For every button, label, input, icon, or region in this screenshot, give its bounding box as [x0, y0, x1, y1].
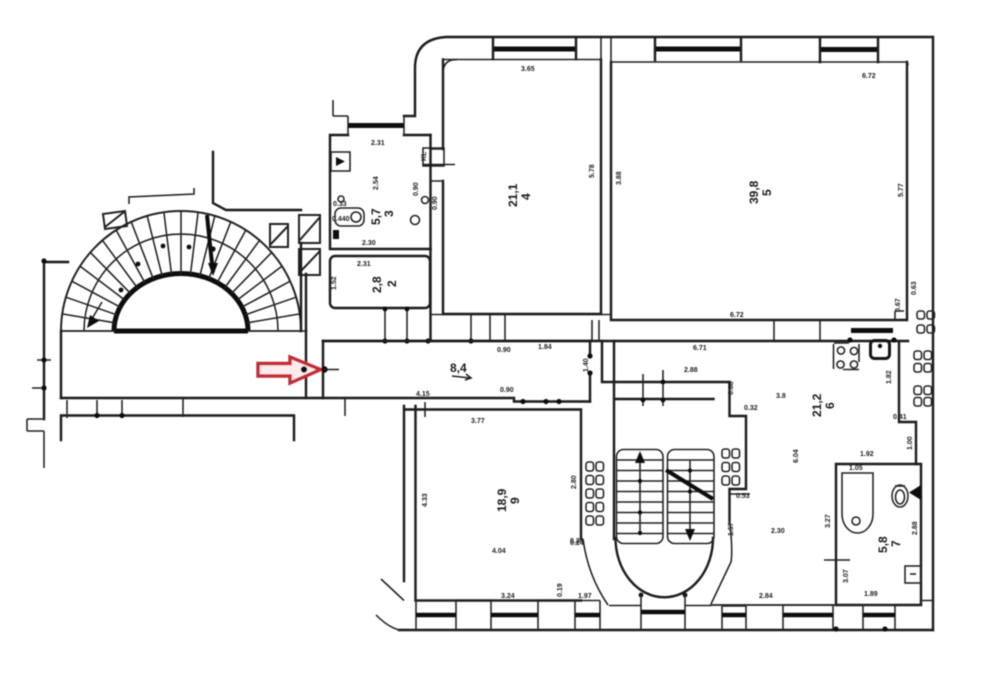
svg-text:0.88: 0.88 — [728, 381, 735, 395]
svg-text:21,2: 21,2 — [810, 393, 824, 417]
svg-text:1.92: 1.92 — [860, 451, 874, 458]
svg-text:1.52: 1.52 — [331, 276, 338, 290]
svg-text:1.05: 1.05 — [849, 465, 863, 472]
svg-text:1.40: 1.40 — [583, 358, 590, 372]
svg-text:0.67: 0.67 — [895, 298, 902, 312]
svg-text:0.19: 0.19 — [557, 583, 564, 597]
svg-text:5: 5 — [760, 189, 774, 196]
svg-text:8,4: 8,4 — [450, 361, 467, 375]
svg-text:0.32: 0.32 — [744, 405, 758, 412]
svg-text:2.31: 2.31 — [371, 140, 385, 147]
svg-text:0.90: 0.90 — [497, 347, 511, 354]
svg-text:1.89: 1.89 — [864, 591, 878, 598]
svg-text:6: 6 — [823, 402, 837, 409]
svg-text:3.65: 3.65 — [521, 66, 535, 73]
svg-text:39,8: 39,8 — [747, 180, 761, 204]
svg-text:4.15: 4.15 — [416, 391, 430, 398]
svg-text:3.24: 3.24 — [501, 593, 515, 600]
svg-text:4.04: 4.04 — [492, 548, 506, 555]
svg-text:5.77: 5.77 — [898, 183, 905, 197]
svg-text:9: 9 — [508, 497, 522, 504]
svg-text:0.90: 0.90 — [413, 182, 420, 196]
svg-text:KL: KL — [421, 151, 428, 161]
svg-text:1.84: 1.84 — [538, 344, 552, 351]
svg-text:3: 3 — [382, 210, 396, 217]
svg-text:2,8: 2,8 — [370, 276, 384, 293]
svg-text:3.27: 3.27 — [825, 514, 832, 528]
svg-text:2: 2 — [385, 280, 399, 287]
svg-text:1.82: 1.82 — [886, 370, 893, 384]
svg-text:3.77: 3.77 — [471, 418, 485, 425]
svg-text:6.71: 6.71 — [693, 345, 707, 352]
svg-text:0.440: 0.440 — [332, 216, 350, 223]
svg-text:4.33: 4.33 — [422, 493, 429, 507]
svg-text:2.31: 2.31 — [357, 261, 371, 268]
svg-text:0.90: 0.90 — [500, 387, 514, 394]
svg-text:3.07: 3.07 — [843, 569, 850, 583]
svg-text:5.78: 5.78 — [589, 164, 596, 178]
svg-text:2.30: 2.30 — [771, 528, 785, 535]
svg-text:5,7: 5,7 — [369, 208, 383, 225]
svg-text:2.84: 2.84 — [759, 593, 773, 600]
svg-text:2.54: 2.54 — [373, 176, 380, 190]
svg-text:3.88: 3.88 — [616, 171, 623, 185]
svg-text:1.57: 1.57 — [728, 522, 735, 536]
svg-text:21,1: 21,1 — [506, 183, 520, 207]
svg-text:2.30: 2.30 — [362, 240, 376, 247]
svg-text:0.24: 0.24 — [570, 540, 584, 547]
svg-text:2.80: 2.80 — [571, 475, 578, 489]
svg-text:0.41: 0.41 — [893, 414, 907, 421]
svg-text:2.88: 2.88 — [912, 521, 919, 535]
svg-text:7: 7 — [889, 540, 903, 547]
svg-text:2.88: 2.88 — [684, 367, 698, 374]
svg-text:1.00: 1.00 — [907, 436, 914, 450]
svg-text:5,8: 5,8 — [876, 536, 890, 553]
svg-text:6.04: 6.04 — [793, 449, 800, 463]
svg-text:0.63: 0.63 — [911, 281, 918, 295]
svg-text:6.72: 6.72 — [862, 73, 876, 80]
svg-text:0.90: 0.90 — [432, 196, 439, 210]
svg-text:18,9: 18,9 — [495, 488, 509, 512]
svg-text:3.8: 3.8 — [776, 393, 786, 400]
svg-text:4: 4 — [519, 193, 533, 200]
svg-text:6.72: 6.72 — [730, 312, 744, 319]
svg-text:1.97: 1.97 — [578, 593, 592, 600]
